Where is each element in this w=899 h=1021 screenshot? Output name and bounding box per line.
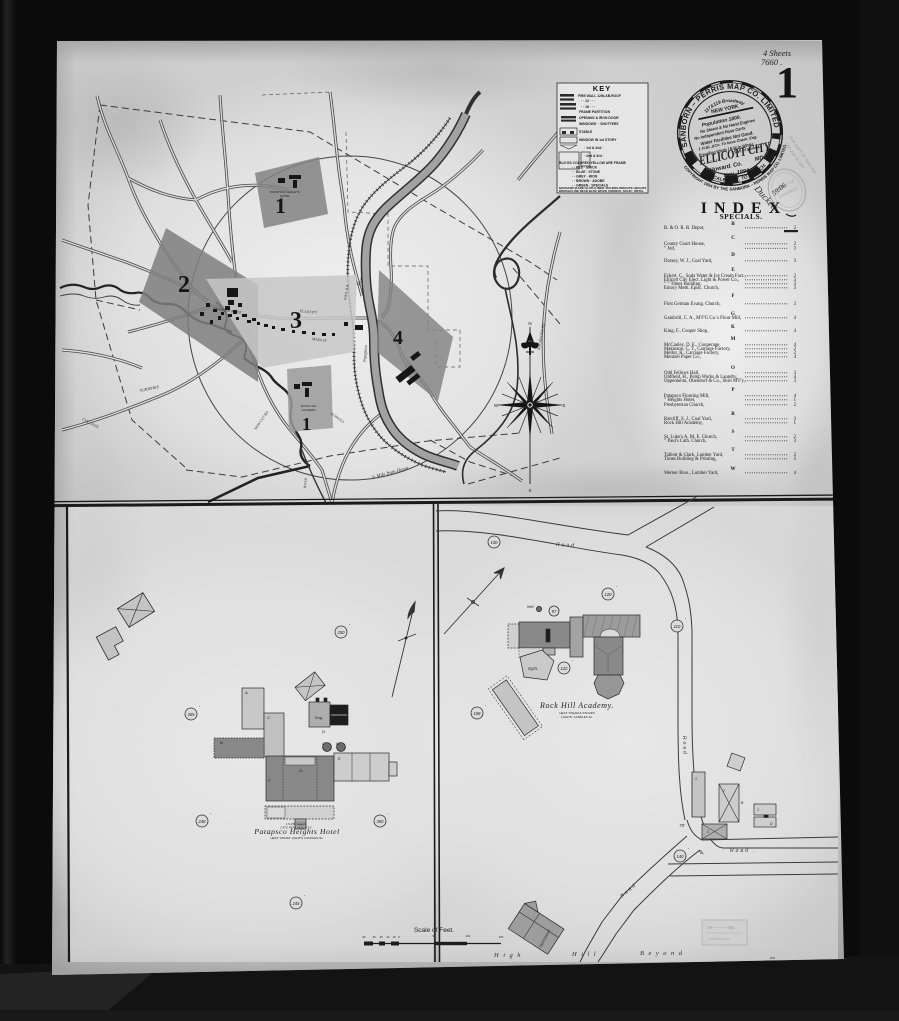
svg-text:High: High	[493, 952, 525, 959]
svg-text:BROKEN LINE REAR BLDG WOOD COR: BROKEN LINE REAR BLDG WOOD CORNICE. SOLI…	[559, 189, 644, 193]
svg-text:Road .: Road .	[730, 848, 757, 854]
svg-text:Hill: Hill	[571, 951, 600, 958]
svg-text:P: P	[731, 388, 734, 393]
svg-text:30: 30	[379, 935, 383, 939]
svg-text:1: 1	[707, 830, 709, 834]
svg-text:N: N	[528, 321, 531, 326]
svg-text:First German Evang. Church,: First German Evang. Church,	[664, 302, 721, 307]
svg-text:K: K	[731, 325, 735, 330]
svg-text:LIGHTS: CANDLES &c.: LIGHTS: CANDLES &c.	[561, 715, 593, 719]
svg-text:FIRE WALL 12IN.AB.ROOF: FIRE WALL 12IN.AB.ROOF	[578, 94, 621, 98]
svg-text:C': C'	[322, 741, 326, 746]
svg-text:1: 1	[275, 193, 286, 218]
svg-text:122: 122	[561, 666, 569, 671]
svg-text:M: M	[731, 337, 736, 342]
svg-text:50: 50	[362, 935, 366, 939]
svg-text:140: 140	[677, 854, 685, 859]
svg-text:2: 2	[178, 272, 190, 298]
svg-text:” Paul's Cath. Church,: ” Paul's Cath. Church,	[664, 439, 707, 444]
svg-text:Eng.: Eng.	[315, 715, 323, 720]
svg-text:F.: F.	[268, 778, 271, 783]
svg-text:B.: B.	[220, 740, 224, 745]
svg-text:· · 12 · · ·: · · 12 · · ·	[581, 99, 595, 103]
svg-text:OPENING & IRON DOOR: OPENING & IRON DOOR	[579, 116, 619, 120]
svg-text:ACADEMY: ACADEMY	[302, 408, 317, 412]
svg-text:Gym.: Gym.	[528, 666, 538, 671]
svg-text:STABLE: STABLE	[579, 130, 593, 134]
svg-text:O: O	[731, 366, 735, 371]
svg-text:· 1st & 2nd ·: · 1st & 2nd ·	[584, 146, 603, 150]
svg-text:HEAT: STEAM. LIGHTS: CANDLES: HEAT: STEAM. LIGHTS: CANDLES &c.	[271, 836, 324, 840]
svg-text:Mentzel Paper Co.,: Mentzel Paper Co.,	[664, 355, 701, 360]
svg-text:· 2nd & 3rd ·: · 2nd & 3rd ·	[584, 154, 604, 158]
svg-text:WINDOW IN 1st STORY: WINDOW IN 1st STORY	[579, 138, 617, 142]
svg-text:365: 365	[188, 712, 196, 717]
svg-text:244: 244	[292, 901, 301, 906]
svg-text:20: 20	[386, 935, 390, 939]
svg-text:· · BROWN · ADOBE: · · BROWN · ADOBE	[572, 179, 605, 183]
svg-text:Werner Bros., Lumber Yard,: Werner Bros., Lumber Yard,	[664, 471, 718, 476]
svg-text:1 S.P.B. SHEDS: 1 S.P.B. SHEDS	[286, 822, 306, 826]
svg-text:Rock Hill Academy.: Rock Hill Academy.	[539, 701, 614, 710]
svg-text:2: 2	[722, 789, 725, 793]
svg-text:100: 100	[491, 540, 499, 545]
svg-text:Rock Hill Academy,: Rock Hill Academy,	[664, 421, 703, 426]
svg-text:Oppenheim, Obendorf & Co., Shi: Oppenheim, Obendorf & Co., Shirt M'F'y,	[664, 379, 745, 384]
svg-text:40: 40	[372, 935, 376, 939]
svg-text:D.: D.	[322, 729, 326, 734]
svg-text:Emory Meth. Episc. Church,: Emory Meth. Episc. Church,	[664, 286, 719, 291]
svg-text:108: 108	[474, 711, 482, 716]
svg-text:1: 1	[776, 58, 798, 107]
svg-text:S: S	[528, 488, 531, 493]
svg-text:KEY: KEY	[593, 84, 611, 93]
svg-text:D: D	[770, 822, 773, 826]
svg-text:Gambrill, C. A., M'F'G Co.'s F: Gambrill, C. A., M'F'G Co.'s Flour Mill,	[664, 316, 741, 321]
svg-text:E: E	[338, 756, 341, 761]
svg-text:F: F	[731, 294, 734, 299]
svg-text:A.: A.	[244, 690, 249, 695]
svg-text:100: 100	[466, 934, 471, 938]
svg-text:Presbyterian Church,: Presbyterian Church,	[664, 403, 705, 408]
svg-text:248: 248	[198, 819, 207, 824]
svg-text:· · 18 · · ·: · · 18 · · ·	[581, 105, 595, 109]
svg-text:SPECIALS.: SPECIALS.	[719, 212, 762, 221]
svg-text:4: 4	[393, 327, 403, 349]
svg-text:R: R	[731, 412, 735, 417]
svg-text:350: 350	[377, 819, 385, 824]
svg-text:110: 110	[674, 624, 681, 629]
svg-text:WINDOWS· · SHUTTERS: WINDOWS· · SHUTTERS	[579, 122, 619, 126]
svg-text:BLD'GS COLORED YELLOW ARE FRAM: BLD'GS COLORED YELLOW ARE FRAME	[559, 161, 627, 165]
svg-text:C.: C.	[267, 715, 271, 720]
svg-text:E: E	[562, 403, 565, 408]
svg-text:Times Building & Printing,: Times Building & Printing,	[664, 457, 717, 462]
svg-text:Road: Road	[681, 736, 688, 756]
svg-text:D: D	[731, 253, 735, 258]
svg-text:29———: 29———	[707, 925, 726, 930]
svg-text:150: 150	[499, 935, 504, 939]
svg-text:G.: G.	[299, 768, 303, 773]
svg-text:10: 10	[392, 935, 396, 939]
svg-text:120: 120	[605, 592, 613, 597]
svg-text:N.: N.	[336, 741, 340, 746]
svg-text:Patapsco Heights Hotel: Patapsco Heights Hotel	[253, 827, 340, 836]
svg-text:1: 1	[302, 414, 311, 434]
svg-text:Scale of Feet.: Scale of Feet.	[414, 927, 454, 934]
svg-text:FRAME PARTITION: FRAME PARTITION	[579, 110, 611, 114]
svg-text:97: 97	[552, 609, 557, 614]
svg-text:955: 955	[727, 925, 735, 930]
svg-text:C: C	[731, 236, 735, 241]
svg-text:W: W	[731, 467, 736, 472]
svg-text:B. & O. R. R. Depot,: B. & O. R. R. Depot,	[664, 226, 705, 231]
svg-text:Well: Well	[527, 605, 534, 609]
svg-text:1: 1	[757, 808, 759, 812]
svg-text:250: 250	[337, 630, 346, 635]
svg-text:75': 75'	[679, 823, 685, 828]
svg-text:SANBORN MAP: SANBORN MAP	[708, 937, 730, 941]
svg-text:· · BLUE · STONE: · · BLUE · STONE	[572, 170, 601, 174]
svg-text:· · RED · BRICK: · · RED · BRICK	[572, 166, 598, 170]
svg-text:Beyond: Beyond	[640, 950, 687, 957]
svg-text:S: S	[732, 430, 735, 435]
svg-text:50: 50	[432, 934, 436, 938]
svg-text:· · GREY · IRON: · · GREY · IRON	[572, 175, 598, 179]
svg-text:1: 1	[695, 777, 697, 781]
svg-text:Dorsey, W. J., Coal Yard,: Dorsey, W. J., Coal Yard,	[664, 259, 712, 264]
svg-text:Road: Road	[556, 542, 576, 549]
svg-text:King, F., Cooper Shop,: King, F., Cooper Shop,	[664, 329, 708, 334]
svg-text:” Jail,: ” Jail,	[664, 247, 675, 252]
